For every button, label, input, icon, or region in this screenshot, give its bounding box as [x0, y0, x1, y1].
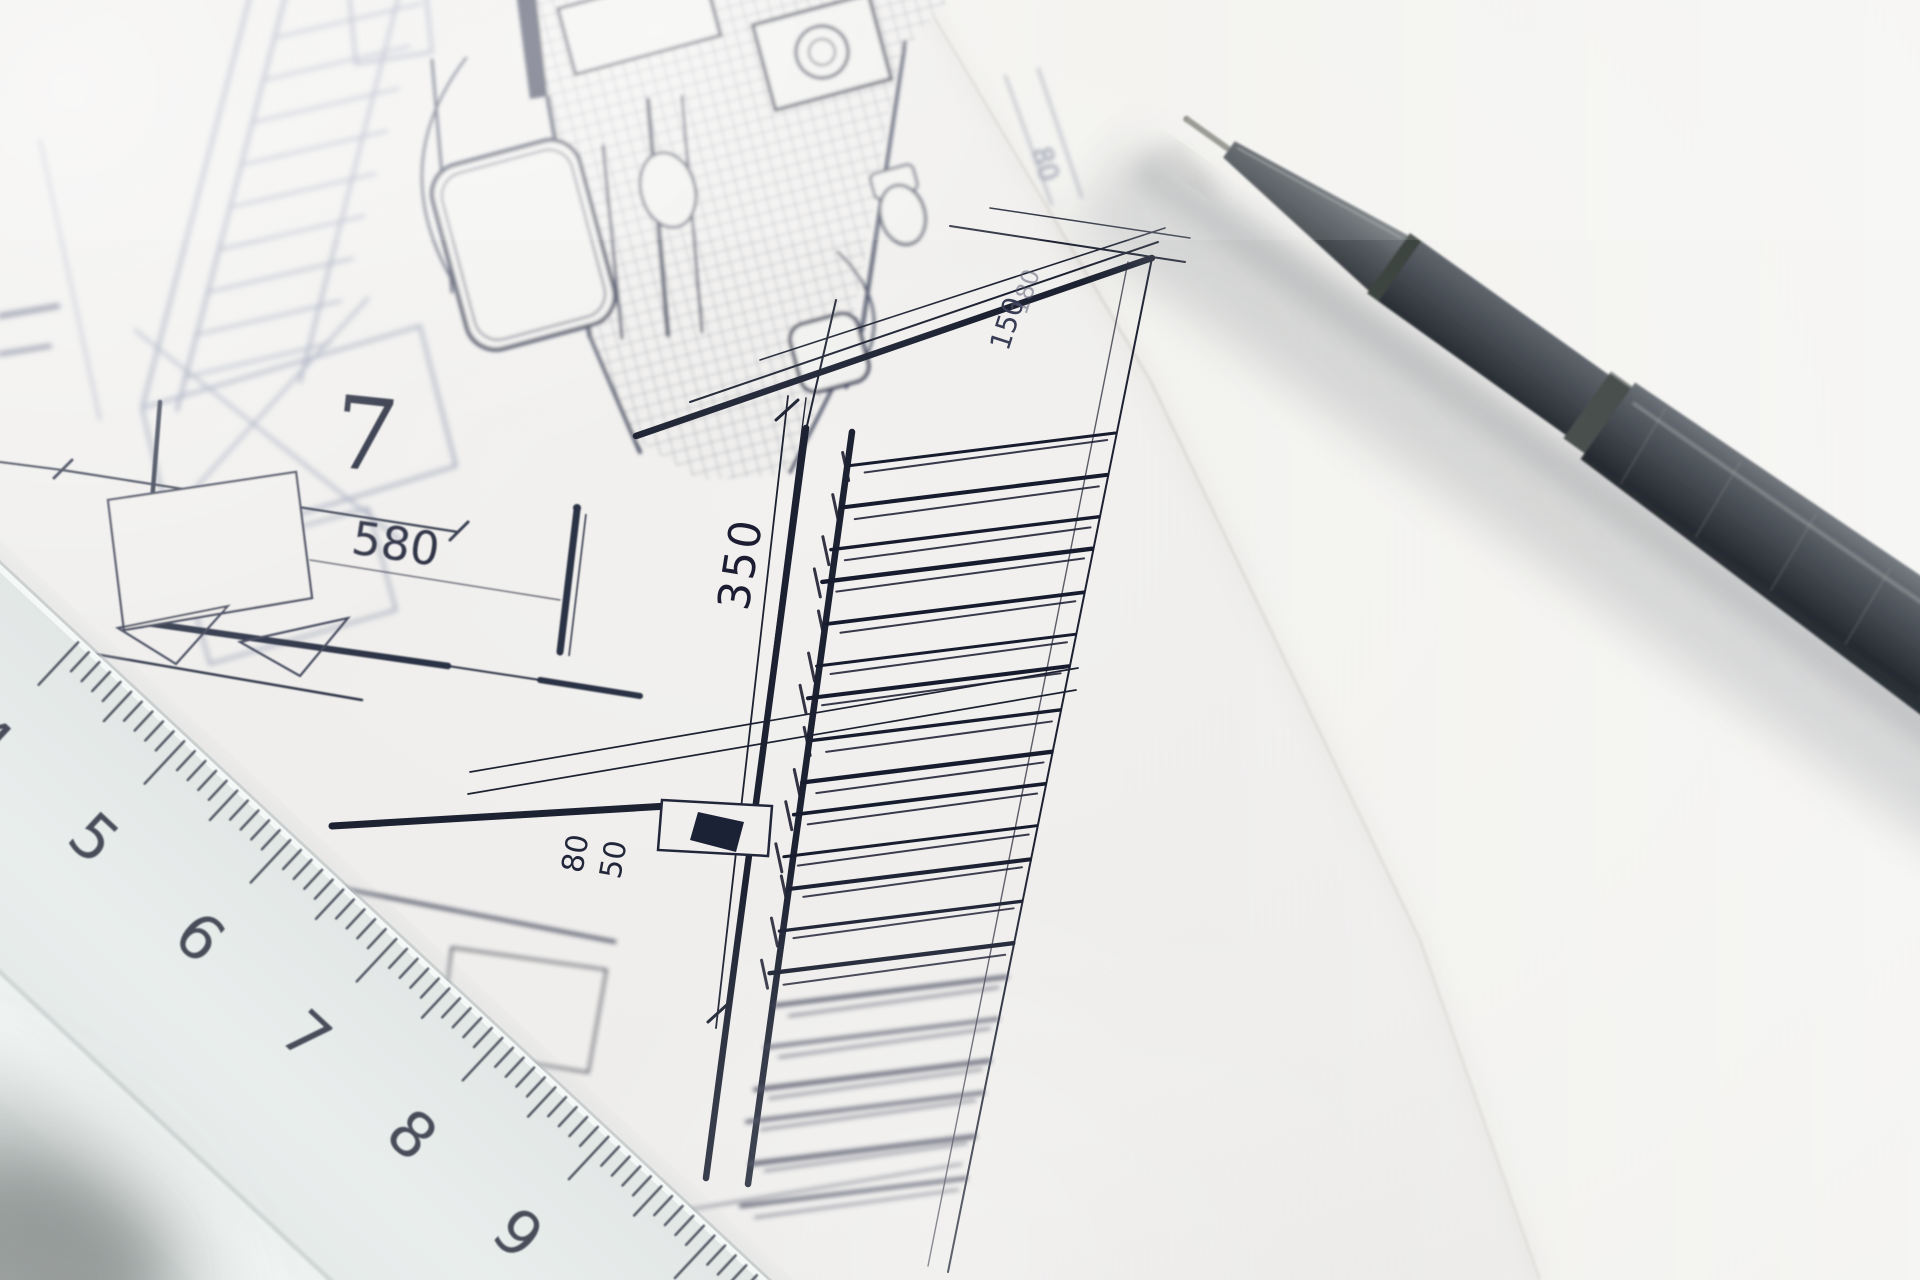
top-light-wash	[0, 0, 1920, 240]
photo-scene: 80 580 7	[0, 0, 1920, 1280]
scene-canvas: 80 580 7	[0, 0, 1920, 1280]
